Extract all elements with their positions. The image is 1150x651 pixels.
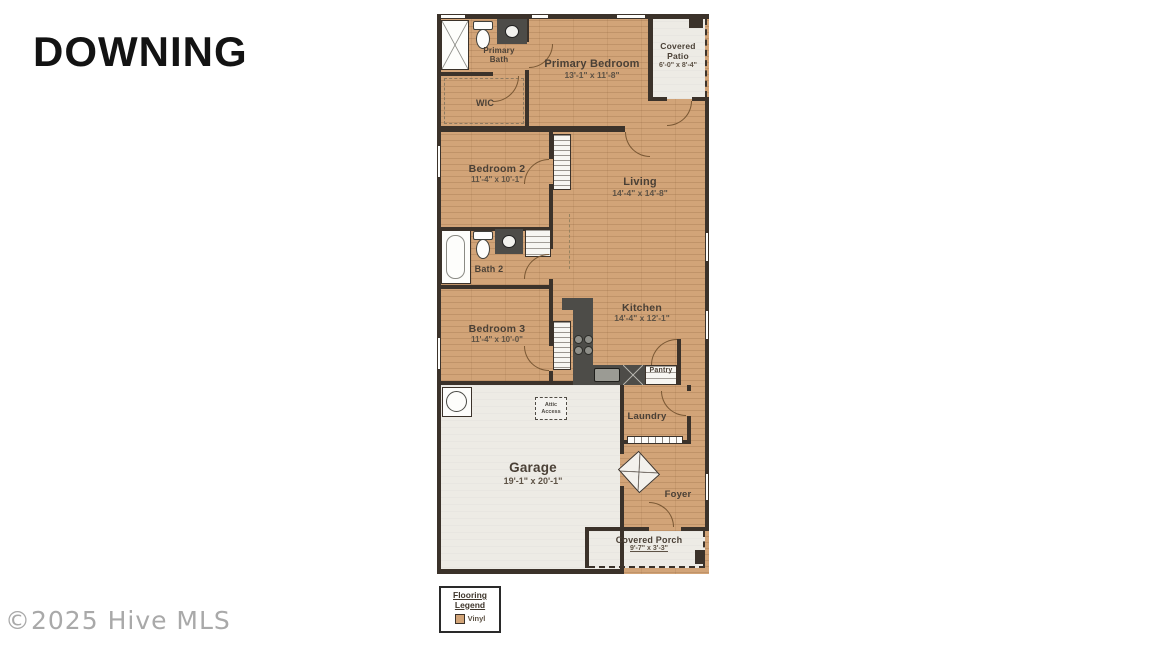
toilet-icon — [476, 239, 490, 259]
wall — [437, 14, 441, 574]
window — [705, 310, 709, 340]
window — [705, 232, 709, 262]
vinyl-swatch-icon — [455, 614, 465, 624]
room-label-bath2: Bath 2 — [475, 264, 504, 274]
legend-title: Flooring Legend — [441, 591, 499, 611]
wall — [437, 126, 625, 132]
bedroom3-closet — [553, 321, 571, 370]
room-label-kitchen: Kitchen 14'-4" x 12'-1" — [614, 302, 670, 324]
range-x-icon — [623, 365, 643, 385]
room-label-covered-patio: Covered Patio 6'-0" x 8'-4" — [655, 42, 701, 70]
room-label-bedroom3: Bedroom 3 11'-4" x 10'-0" — [469, 323, 526, 344]
wall — [648, 14, 653, 101]
kitchen-sink-icon — [594, 368, 620, 382]
window — [616, 14, 646, 19]
wall — [437, 72, 493, 76]
wall — [648, 97, 667, 101]
room-label-pantry: Pantry — [650, 367, 673, 375]
room-label-covered-porch: Covered Porch 9'-7" x 3'-3" — [616, 535, 683, 553]
opening-dashed-line — [569, 214, 572, 269]
wall — [585, 527, 649, 531]
window — [531, 14, 549, 19]
room-label-laundry: Laundry — [628, 412, 667, 423]
water-heater-icon — [446, 391, 467, 412]
room-label-living: Living 14'-4" x 14'-8" — [612, 176, 668, 198]
laundry-bifold-door — [627, 436, 683, 444]
legend-item-label: Vinyl — [468, 614, 486, 623]
wall — [437, 285, 549, 289]
wall — [687, 385, 691, 391]
attic-access-label: Attic Access — [539, 402, 563, 415]
attic-access-box: Attic Access — [535, 397, 567, 420]
wall — [437, 14, 709, 19]
floor-plan: Attic Access Primary Bedroom 13'-1" x 11… — [437, 14, 709, 574]
room-label-primary-bedroom: Primary Bedroom 13'-1" x 11'-8" — [544, 58, 639, 80]
legend-row: Vinyl — [441, 614, 499, 624]
bath2-linen-closet — [525, 229, 551, 257]
plan-title: DOWNING — [33, 28, 248, 76]
window — [440, 14, 466, 19]
kitchen-counter — [573, 298, 593, 365]
patio-post — [689, 19, 703, 28]
wall — [683, 440, 691, 444]
page-canvas: DOWNING — [0, 0, 1150, 651]
stove-burner-icon — [574, 346, 583, 355]
vanity-sink-icon — [497, 19, 527, 44]
vanity-sink-icon — [495, 229, 523, 254]
sink-basin-icon — [502, 235, 516, 248]
room-label-primary-bath: Primary Bath — [479, 46, 519, 64]
stove-burner-icon — [584, 346, 593, 355]
room-label-garage: Garage 19'-1" x 20'-1" — [504, 460, 563, 486]
window — [437, 145, 441, 178]
shower-icon — [441, 20, 469, 70]
stove-burner-icon — [584, 335, 593, 344]
window — [437, 337, 441, 370]
wall — [437, 569, 624, 574]
room-label-bedroom2: Bedroom 2 11'-4" x 10'-1" — [469, 163, 526, 184]
window — [705, 473, 709, 501]
bathtub-inner — [446, 235, 465, 279]
wall — [549, 371, 553, 381]
porch-post — [695, 550, 705, 564]
flooring-legend: Flooring Legend Vinyl — [439, 586, 501, 633]
water-heater-box — [442, 387, 472, 417]
wall — [585, 527, 589, 568]
room-label-wic: WIC — [476, 98, 494, 108]
stove-burner-icon — [574, 335, 583, 344]
bedroom2-closet — [553, 134, 571, 190]
copyright-watermark: ©2025 Hive MLS — [5, 606, 231, 635]
wall — [681, 527, 709, 531]
room-label-foyer: Foyer — [665, 490, 692, 501]
wall — [692, 97, 709, 101]
wall — [525, 70, 529, 126]
bathtub-icon — [441, 230, 471, 284]
wall — [677, 339, 681, 385]
sink-basin-icon — [505, 25, 519, 38]
